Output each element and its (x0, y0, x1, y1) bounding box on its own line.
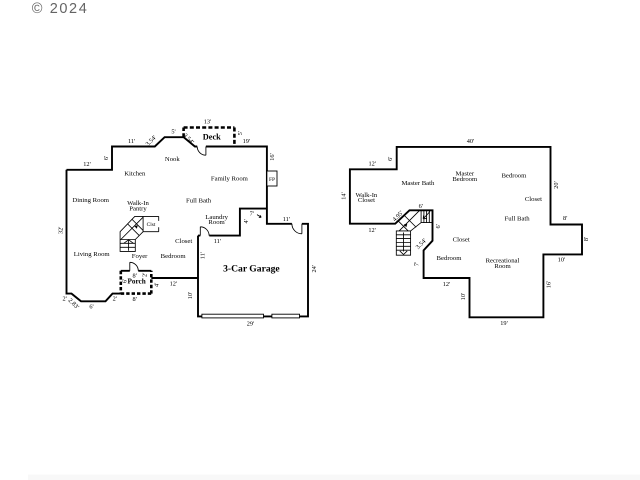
svg-text:Deck: Deck (203, 132, 221, 141)
svg-text:6': 6' (435, 224, 442, 228)
svg-text:4': 4' (243, 219, 250, 223)
svg-text:© 2024: © 2024 (32, 1, 89, 17)
svg-text:7': 7' (414, 262, 421, 266)
svg-text:20': 20' (553, 181, 560, 188)
svg-text:6': 6' (419, 203, 423, 210)
svg-text:6': 6' (89, 304, 93, 311)
svg-text:Porch: Porch (127, 278, 145, 286)
svg-text:Room: Room (208, 219, 225, 226)
svg-text:4': 4' (154, 283, 161, 287)
svg-text:Pantry: Pantry (129, 205, 147, 212)
svg-text:FP: FP (269, 177, 275, 183)
svg-text:Clst: Clst (147, 222, 156, 228)
svg-text:40': 40' (467, 138, 474, 145)
svg-text:3.54': 3.54' (182, 132, 196, 146)
svg-text:4.95': 4.95' (391, 210, 405, 224)
svg-text:Closet: Closet (358, 197, 375, 204)
svg-text:Foyer: Foyer (132, 253, 148, 260)
svg-text:8': 8' (563, 215, 567, 222)
svg-text:Nook: Nook (165, 156, 181, 163)
svg-text:Master Bath: Master Bath (401, 180, 435, 187)
svg-text:3-Car Garage: 3-Car Garage (223, 263, 280, 274)
svg-text:Closet: Closet (525, 196, 542, 203)
svg-text:5': 5' (171, 129, 175, 136)
svg-text:2': 2' (142, 273, 149, 277)
svg-text:Room: Room (494, 263, 511, 270)
svg-text:19': 19' (500, 320, 507, 327)
svg-text:12': 12' (368, 161, 375, 168)
svg-text:10': 10' (187, 292, 194, 299)
svg-text:14': 14' (340, 192, 347, 199)
svg-text:Bedroom: Bedroom (452, 176, 478, 183)
svg-text:16': 16' (269, 153, 276, 160)
svg-text:Closet: Closet (175, 238, 192, 245)
svg-text:8': 8' (583, 237, 590, 241)
svg-text:29': 29' (247, 320, 254, 327)
svg-text:Bedroom: Bedroom (161, 253, 187, 260)
svg-text:13': 13' (204, 119, 211, 126)
svg-text:Bedroom: Bedroom (437, 255, 463, 262)
svg-text:Dining Room: Dining Room (72, 197, 109, 204)
svg-text:5': 5' (237, 131, 244, 135)
svg-text:Full Bath: Full Bath (186, 197, 212, 204)
svg-text:11': 11' (128, 138, 135, 145)
svg-text:Bedroom: Bedroom (501, 172, 527, 179)
svg-text:19': 19' (243, 138, 250, 145)
svg-text:12': 12' (368, 227, 375, 234)
svg-text:24': 24' (311, 265, 318, 272)
svg-text:16': 16' (546, 281, 553, 288)
svg-text:32': 32' (57, 227, 64, 234)
svg-text:12': 12' (443, 281, 450, 288)
svg-text:7': 7' (250, 211, 254, 218)
svg-text:Living Room: Living Room (74, 251, 111, 258)
svg-text:Closet: Closet (453, 236, 470, 243)
svg-text:Family Room: Family Room (211, 176, 249, 183)
svg-text:10': 10' (558, 257, 565, 264)
svg-text:Full Bath: Full Bath (505, 215, 531, 222)
svg-text:11': 11' (283, 216, 290, 223)
svg-text:10': 10' (460, 293, 467, 300)
svg-text:11': 11' (214, 238, 221, 245)
svg-text:11': 11' (199, 252, 206, 259)
svg-text:12': 12' (83, 161, 90, 168)
svg-text:6': 6' (387, 157, 394, 161)
svg-text:2': 2' (113, 296, 117, 303)
svg-text:Kitchen: Kitchen (124, 171, 146, 178)
svg-text:12': 12' (170, 280, 177, 287)
svg-text:8': 8' (133, 296, 137, 303)
svg-text:6': 6' (103, 156, 110, 160)
